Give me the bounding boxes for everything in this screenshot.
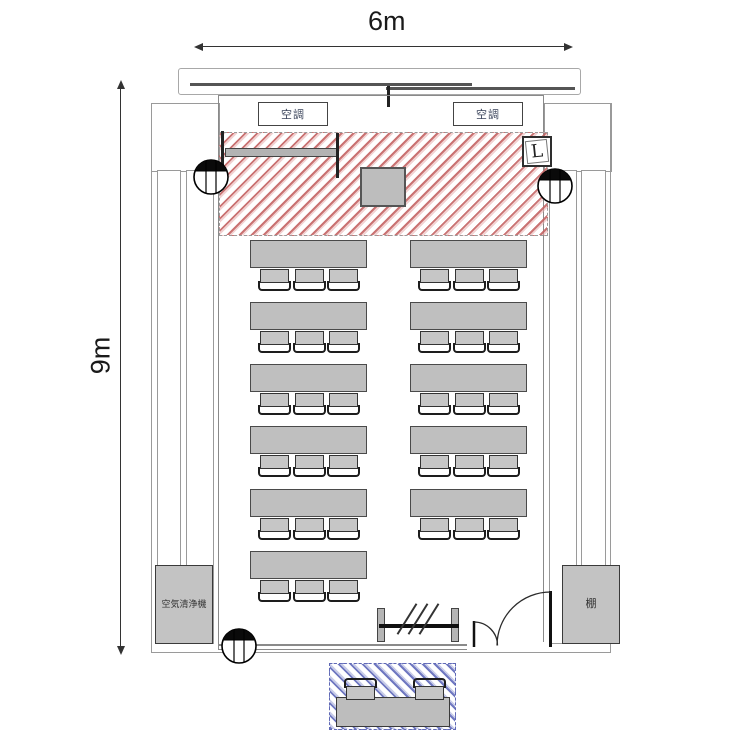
speaker-icon [194, 160, 228, 194]
speaker-icon [538, 169, 572, 203]
entrance-door [474, 591, 551, 647]
symbol-overlay [0, 0, 750, 750]
floor-plan: 6m 9m 空調 空調 L 空気清浄機 [0, 0, 750, 750]
speaker-icon [222, 629, 256, 663]
